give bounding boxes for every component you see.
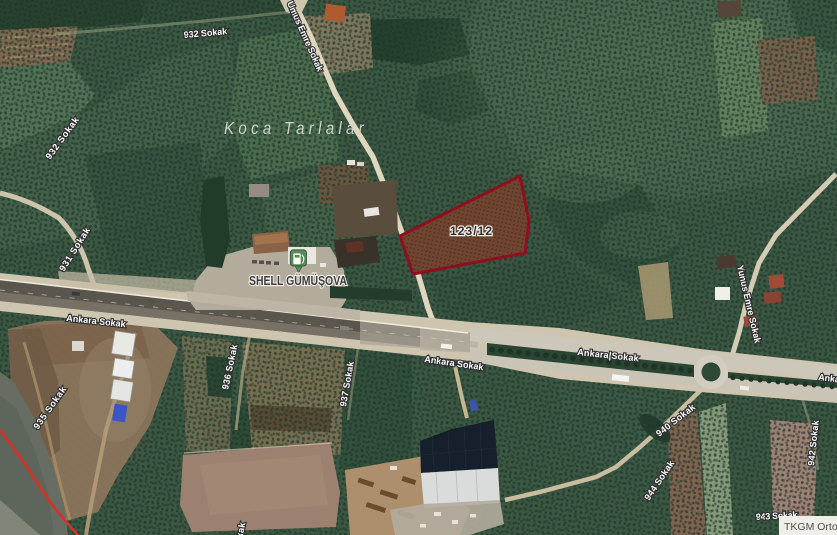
svg-text:SHELL GÜMÜŞOVA: SHELL GÜMÜŞOVA [249,273,347,288]
svg-text:Koca Tarlalar: Koca Tarlalar [224,118,368,138]
svg-text:TKGM Ortofot: TKGM Ortofot [784,521,837,533]
svg-text:123/12: 123/12 [450,224,492,238]
